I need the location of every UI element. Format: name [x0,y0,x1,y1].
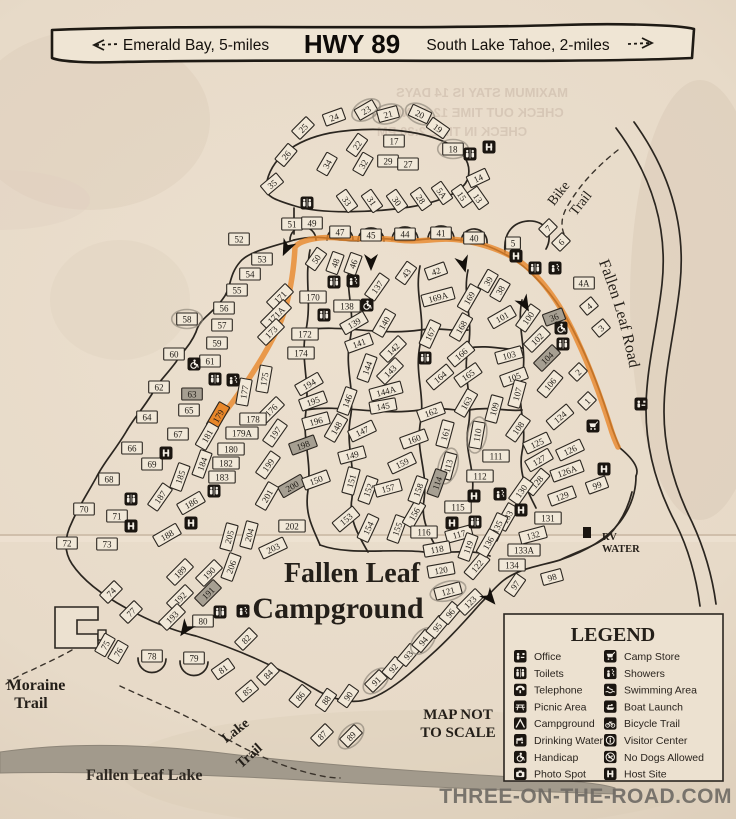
direction-arrow-icon [364,254,378,271]
toilets-icon [301,197,314,210]
legend-phone-icon [514,684,527,697]
site-tag-126: 126 [556,439,585,461]
site-tag-206: 206 [221,553,241,582]
svg-text:178: 178 [246,414,260,424]
svg-text:41: 41 [437,228,446,238]
banner-left-label: Emerald Bay, 5-miles [123,37,269,54]
site-tag-90: 90 [337,684,359,708]
site-tag-129: 129 [548,486,577,506]
site-tag-74: 74 [99,580,122,603]
svg-text:133A: 133A [514,545,535,555]
legend-info-icon [604,734,617,747]
svg-text:116: 116 [417,527,431,537]
site-tag-164: 164 [426,364,454,390]
site-tag-166: 166 [447,341,475,367]
svg-text:69: 69 [148,459,158,469]
site-tag-160: 160 [400,429,429,449]
host-icon [160,447,173,460]
site-tag-126A: 126A [550,460,584,482]
site-tag-53: 53 [252,253,273,265]
hwy89-banner: Emerald Bay, 5-miles HWY 89 South Lake T… [52,24,694,62]
svg-text:112: 112 [473,471,486,481]
site-tag-205: 205 [220,523,238,552]
site-tag-59: 59 [207,337,228,349]
site-tag-13: 13 [467,186,489,210]
svg-text:80: 80 [199,616,209,626]
site-tag-17: 17 [384,135,405,147]
site-tag-143: 143 [376,357,403,384]
legend-label: Host Site [624,769,667,781]
svg-text:57: 57 [218,320,228,330]
site-tag-108: 108 [506,414,531,443]
site-tag-190: 190 [195,559,222,586]
map-not-to-scale-2: TO SCALE [420,725,495,741]
site-tag-48: 48 [326,251,344,274]
legend-label: Boat Launch [624,701,683,713]
site-tag-188: 188 [153,523,182,547]
site-tag-27: 27 [398,158,419,170]
legend-bike-icon [604,717,617,730]
legend-photo-icon [514,768,527,781]
banner-highway-label: HWY 89 [304,29,400,59]
svg-text:180: 180 [224,444,238,454]
site-tag-35: 35 [260,173,283,195]
svg-text:183: 183 [215,472,229,482]
legend-label: Visitor Center [624,735,688,747]
shower-icon [347,275,360,288]
toilets-icon [318,309,331,322]
site-tag-62: 62 [149,381,170,393]
site-tag-111: 111 [483,450,509,462]
svg-text:170: 170 [306,292,320,302]
banner-right-label: South Lake Tahoe, 2-miles [426,37,609,54]
site-tag-2: 2 [569,363,588,382]
host-icon [598,463,611,476]
site-tag-4: 4 [579,297,598,316]
site-tag-70: 70 [74,503,95,515]
site-tag-172: 172 [292,328,318,340]
site-tag-131: 131 [535,512,561,524]
site-tag-116: 116 [411,526,437,538]
site-tag-202: 202 [279,520,305,532]
svg-text:44: 44 [401,229,411,239]
site-tag-56: 56 [214,302,235,314]
host-icon [468,490,481,503]
watermark: THREE-ON-THE-ROAD.COM [439,785,732,808]
toilets-icon [125,493,138,506]
svg-text:79: 79 [190,653,200,663]
site-tag-55: 55 [227,284,248,296]
site-tag-200: 200 [278,474,307,498]
site-tag-81: 81 [211,658,235,680]
site-tag-24: 24 [322,108,345,126]
site-tag-149: 149 [338,446,367,464]
svg-text:73: 73 [103,539,113,549]
site-tag-77: 77 [119,600,142,623]
legend-label: Photo Spot [534,769,586,781]
site-tag-156: 156 [402,500,426,529]
toilets-icon [469,516,482,529]
toilets-icon [557,338,570,351]
host-icon [125,520,138,533]
host-icon [515,504,528,517]
site-tag-73: 73 [97,538,118,550]
svg-text:53: 53 [258,254,268,264]
svg-text:64: 64 [143,412,153,422]
svg-text:67: 67 [174,429,184,439]
site-tag-71: 71 [107,510,128,522]
site-tag-46: 46 [344,252,362,275]
site-tag-79: 79 [184,652,205,664]
site-tag-34: 34 [317,152,338,176]
site-tag-182: 182 [213,457,239,469]
svg-text:63: 63 [188,389,198,399]
site-tag-146: 146 [337,387,357,416]
svg-text:66: 66 [128,443,138,453]
campground-title-line2: Campground [252,592,423,625]
legend-label: No Dogs Allowed [624,752,704,764]
site-tag-186: 186 [177,491,206,515]
site-tag-140: 140 [372,309,396,338]
store-icon [587,420,600,433]
site-tag-198: 198 [289,435,318,455]
svg-text:138: 138 [340,301,354,311]
site-tag-139: 139 [340,311,369,335]
site-tag-199: 199 [256,451,281,480]
svg-text:115: 115 [451,502,465,512]
direction-arrow-icon [454,254,472,274]
shower-icon [549,262,562,275]
site-tag-187: 187 [148,483,173,512]
site-tag-138: 138 [334,300,360,312]
svg-text:72: 72 [63,538,72,548]
site-tag-106: 106 [537,370,563,398]
site-tag-82: 82 [234,627,257,650]
site-tag-133A: 133A [508,544,540,556]
shower-icon [227,374,240,387]
svg-text:70: 70 [80,504,90,514]
site-tag-25: 25 [291,116,314,139]
legend-shower-icon [604,667,617,680]
site-tag-40: 40 [464,232,485,244]
site-tag-66: 66 [122,442,143,454]
site-tag-159: 159 [388,452,417,474]
site-tag-85: 85 [235,680,258,702]
legend-handicap-icon [514,751,527,764]
svg-text:68: 68 [105,474,115,484]
svg-text:54: 54 [246,269,256,279]
site-tag-65: 65 [179,404,200,416]
toilets-icon [529,262,542,275]
legend-nodogs-icon [604,751,617,764]
legend-tent-icon [514,717,527,730]
site-tag-49: 49 [302,217,323,229]
svg-text:45: 45 [367,230,377,240]
site-tag-175: 175 [256,365,272,393]
host-icon [446,517,459,530]
site-tag-169A: 169A [421,287,455,307]
legend-label: Campground [534,718,595,730]
site-tag-150: 150 [302,470,331,490]
site-tag-137: 137 [365,273,390,302]
site-tag-181: 181 [195,422,219,451]
office-icon [635,398,648,411]
site-tag-141: 141 [345,333,374,353]
legend-label: Bicycle Trail [624,718,680,730]
svg-text:61: 61 [206,356,215,366]
site-tag-69: 69 [142,458,163,470]
site-tag-84: 84 [256,662,279,685]
site-tag-147: 147 [348,420,377,442]
shower-icon [237,605,250,618]
host-icon [483,141,496,154]
svg-text:202: 202 [285,521,299,531]
svg-text:71: 71 [113,511,122,521]
svg-text:59: 59 [213,338,223,348]
svg-text:172: 172 [298,329,312,339]
svg-text:134: 134 [505,560,519,570]
site-tag-31: 31 [361,189,383,213]
site-tag-101: 101 [488,305,517,329]
site-tag-134: 134 [499,559,525,571]
site-tag-54: 54 [240,268,261,280]
site-tag-63: 63 [182,388,203,400]
svg-text:51: 51 [288,219,297,229]
svg-text:60: 60 [170,349,180,359]
site-tag-86: 86 [289,684,311,707]
site-tag-28: 28 [410,187,432,211]
site-tag-45: 45 [361,229,382,241]
svg-text:47: 47 [336,227,346,237]
legend-label: Handicap [534,752,579,764]
legend-label: Telephone [534,685,583,697]
site-tag-169: 169 [457,284,481,313]
legend-label: Showers [624,668,665,680]
legend-label: Picnic Area [534,701,587,713]
site-tag-104: 104 [533,344,560,371]
site-tag-4A: 4A [574,277,595,289]
handicap-icon [361,299,374,312]
site-tag-42: 42 [424,262,447,280]
site-tag-98: 98 [540,569,563,586]
svg-text:5: 5 [511,238,516,248]
site-tag-144: 144 [357,354,377,383]
site-tag-151: 151 [342,467,360,496]
moraine-trail-label-1: Moraine [7,677,66,694]
svg-text:182: 182 [219,458,233,468]
legend-label: Swimming Area [624,685,697,697]
svg-text:52: 52 [235,234,244,244]
bike-trail-label-2: Trail [567,189,595,219]
site-tag-33: 33 [336,189,358,213]
site-tag-185: 185 [170,463,190,492]
rv-water-label-2: WATER [602,544,640,555]
host-icon [185,517,198,530]
svg-text:58: 58 [183,314,193,324]
svg-text:49: 49 [308,218,318,228]
handicap-icon [188,358,201,371]
legend-office-icon [514,650,527,663]
legend-label: Office [534,651,561,663]
site-tag-109: 109 [485,395,503,424]
site-tag-3: 3 [591,319,610,338]
campground-title-line1: Fallen Leaf [284,558,421,589]
site-tag-7: 7 [539,219,558,238]
site-tag-174: 174 [288,347,314,359]
site-tag-115: 115 [445,501,471,513]
site-tag-136: 136 [476,529,500,558]
legend-toilets-icon [514,667,527,680]
site-tag-170: 170 [300,291,326,303]
legend-label: Camp Store [624,651,680,663]
site-tag-67: 67 [168,428,189,440]
toilets-icon [419,352,432,365]
site-tag-112: 112 [467,470,493,482]
toilets-icon [209,373,222,386]
site-tag-179A: 179A [226,427,258,439]
legend-picnic-icon [514,700,527,713]
legend-title: LEGEND [571,624,655,646]
site-tag-120: 120 [427,562,455,578]
legend-boat-icon [604,700,617,713]
site-tag-180: 180 [218,443,244,455]
legend-swim-icon [604,684,617,697]
toilets-icon [328,276,341,289]
site-tag-118: 118 [423,541,451,557]
svg-text:111: 111 [490,451,503,461]
svg-text:62: 62 [155,382,164,392]
site-tag-189: 189 [166,558,193,585]
svg-text:179A: 179A [232,428,253,438]
campground-map-photo: MAXIMUM STAY IS 14 DAYSCHECK OUT TIME 12… [0,0,736,819]
site-tag-5: 5 [506,237,521,249]
site-tag-60: 60 [164,348,185,360]
toilets-icon [214,606,227,619]
site-tag-57: 57 [212,319,233,331]
legend-water-icon [514,734,527,747]
svg-text:27: 27 [404,159,414,169]
bleed-through-line: MAXIMUM STAY IS 14 DAYS [396,85,568,100]
toilets-icon [208,485,221,498]
site-tag-161: 161 [436,420,454,449]
site-tag-191: 191 [194,579,221,606]
svg-text:78: 78 [148,651,158,661]
legend: LEGEND OfficeToiletsTelephonePicnic Area… [504,614,723,781]
legend-label: Drinking Water [534,735,604,747]
site-tag-163: 163 [454,389,478,418]
map-not-to-scale-1: MAP NOT [423,707,493,723]
site-tag-142: 142 [379,335,406,362]
svg-text:131: 131 [541,513,555,523]
lake-name-label: Fallen Leaf Lake [86,767,202,784]
parking-building [55,607,106,648]
site-tag-178: 178 [240,413,266,425]
site-tag-78: 78 [142,650,163,662]
svg-text:65: 65 [185,405,195,415]
site-tag-52: 52 [229,233,250,245]
rv-water-label-1: RV [602,532,617,543]
bike-trail-path [562,150,618,234]
svg-text:4A: 4A [579,278,591,288]
toilets-icon [464,148,477,161]
shower-icon [494,488,507,501]
site-tag-80: 80 [193,615,214,627]
site-tag-204: 204 [240,521,258,550]
svg-text:55: 55 [233,285,243,295]
site-tag-61: 61 [200,355,221,367]
site-tag-64: 64 [137,411,158,423]
svg-text:56: 56 [220,303,230,313]
site-tag-51: 51 [282,218,303,230]
legend-store-icon [604,650,617,663]
site-tag-183: 183 [209,471,235,483]
moraine-trail-label-2: Trail [14,695,48,712]
host-icon [510,250,523,263]
site-tag-44: 44 [395,228,416,240]
svg-text:29: 29 [384,156,394,166]
site-tag-29: 29 [378,155,399,167]
legend-host-icon [604,768,617,781]
site-tag-41: 41 [431,227,452,239]
site-tag-47: 47 [330,226,351,238]
handicap-icon [555,322,568,335]
svg-text:18: 18 [449,144,459,154]
site-tag-99: 99 [585,476,608,494]
site-tag-124: 124 [546,404,574,430]
site-tag-1: 1 [578,392,597,411]
site-tag-72: 72 [57,537,78,549]
site-tag-201: 201 [255,482,279,511]
site-tag-68: 68 [99,473,120,485]
svg-text:17: 17 [390,136,400,146]
svg-text:174: 174 [294,348,308,358]
legend-label: Toilets [534,668,564,680]
site-tag-43: 43 [395,261,417,285]
svg-text:40: 40 [470,233,480,243]
site-tag-6: 6 [552,233,571,252]
